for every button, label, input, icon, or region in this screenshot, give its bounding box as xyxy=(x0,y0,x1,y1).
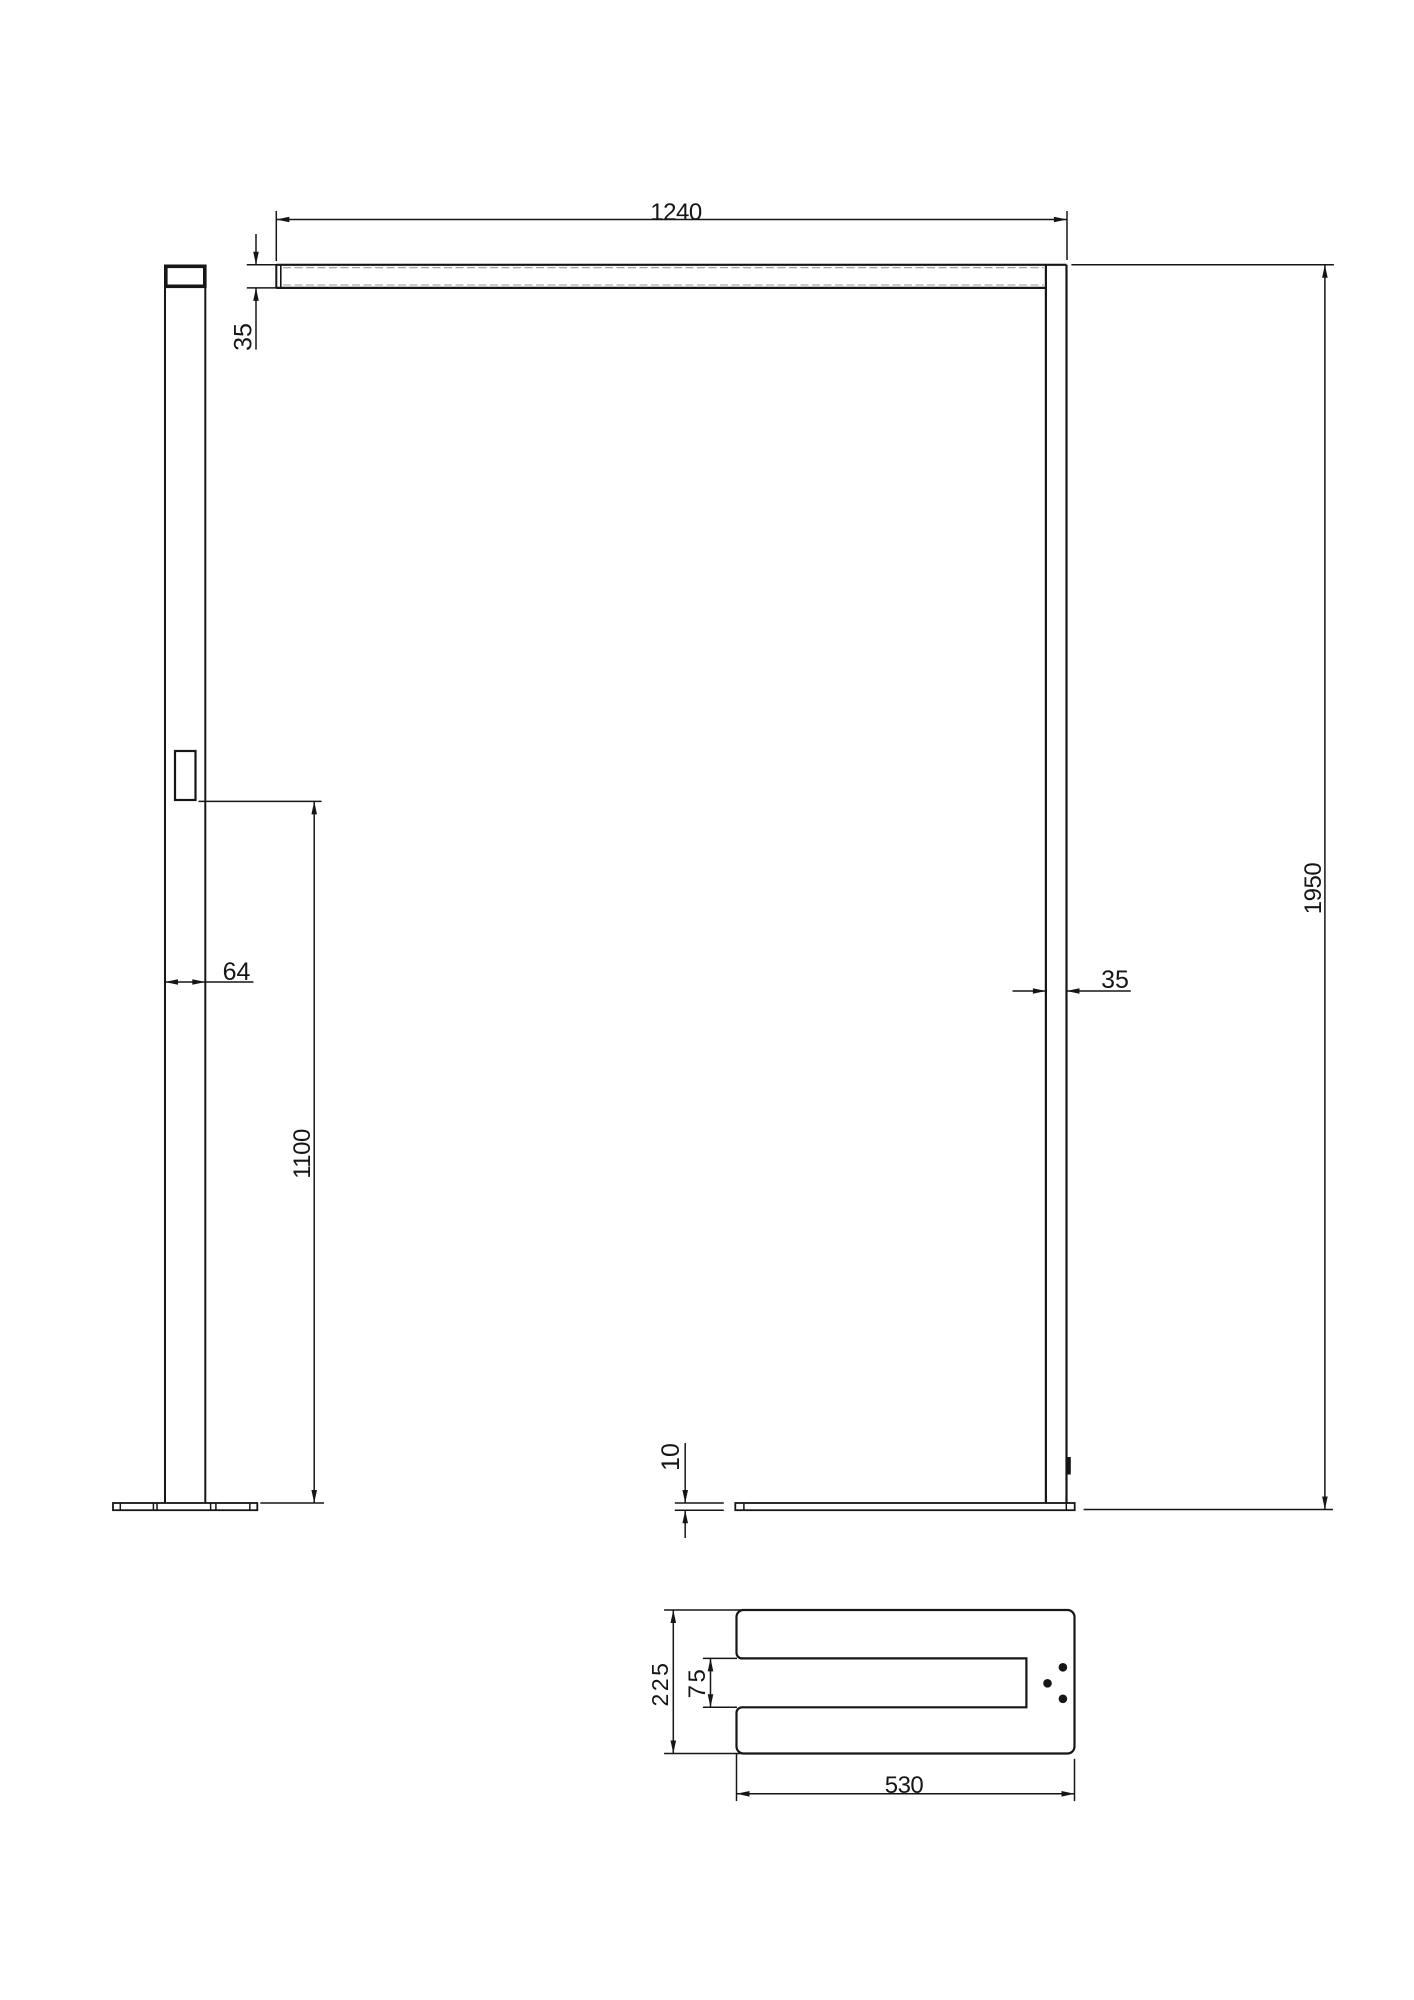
svg-text:530: 530 xyxy=(885,1772,924,1799)
svg-text:1240: 1240 xyxy=(650,199,702,226)
svg-text:35: 35 xyxy=(230,323,258,351)
svg-text:225: 225 xyxy=(647,1661,673,1707)
svg-text:35: 35 xyxy=(1101,966,1129,994)
svg-text:64: 64 xyxy=(223,958,251,986)
svg-text:75: 75 xyxy=(684,1667,711,1699)
svg-text:10: 10 xyxy=(657,1443,685,1471)
svg-text:1950: 1950 xyxy=(1300,863,1327,915)
svg-text:1100: 1100 xyxy=(289,1129,316,1179)
